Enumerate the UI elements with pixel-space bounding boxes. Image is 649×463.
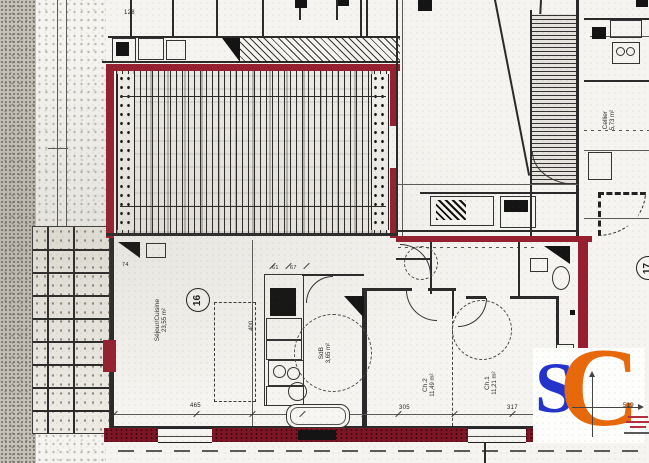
dim-text: 305	[399, 405, 410, 411]
room-label-ch2: Ch.2 11,49 m²	[422, 350, 438, 420]
adjacent-lot-badge: 17	[636, 256, 649, 280]
fixture-block	[338, 0, 349, 6]
dim-vertical-400: 400	[249, 306, 257, 346]
boundary-red-marker	[103, 340, 116, 372]
dim-tick	[303, 263, 309, 269]
room-label-ch1: Ch.1 11,21 m²	[484, 348, 500, 418]
door-sill	[298, 430, 336, 440]
oven-block	[270, 288, 296, 316]
annotation-line	[624, 432, 649, 434]
red-annotation-mark	[626, 421, 649, 423]
washbasin	[288, 382, 307, 401]
sc-logo: S C	[533, 348, 645, 443]
fixture	[588, 152, 612, 180]
step-line	[33, 295, 109, 297]
wc-bowl	[552, 266, 570, 290]
turning-circle-dashed	[452, 300, 512, 360]
boundary-red-top	[106, 64, 400, 71]
site-tick	[48, 148, 68, 149]
dim-text: 128	[124, 10, 135, 16]
window	[468, 428, 526, 443]
step-line	[33, 387, 109, 389]
wall-line	[262, 0, 264, 38]
step-line	[33, 364, 109, 366]
wall-line	[360, 0, 362, 36]
hatched-band	[238, 38, 400, 62]
step-line	[33, 410, 109, 412]
crosshair-arrow-right-icon	[638, 404, 644, 410]
interior-wall	[518, 242, 520, 296]
room-name: Séjour/Cuisine	[154, 270, 162, 370]
boundary-red-left	[106, 64, 114, 238]
wall-line	[576, 0, 579, 236]
kitchen-counter	[138, 38, 164, 60]
fixture	[612, 42, 640, 64]
step-line	[33, 318, 109, 320]
site-boundary-line	[66, 0, 67, 234]
room-name: Cellier	[602, 85, 610, 155]
room-area: 3,65 m²	[326, 323, 334, 383]
stove-block	[116, 42, 129, 56]
step-line	[33, 249, 109, 251]
dimension-line	[120, 206, 386, 207]
fixture	[146, 243, 166, 258]
sink-bowl	[273, 365, 286, 378]
room-area: 11,49 m²	[430, 350, 438, 420]
dim-text: 61	[272, 266, 279, 272]
dimension-line	[120, 96, 386, 97]
wall-line	[420, 192, 578, 194]
burner-circle	[626, 47, 635, 56]
room-name: Ch.2	[422, 350, 430, 420]
room-label-cellier: Cellier 5,73 m²	[602, 85, 618, 155]
boundary-red-top	[396, 236, 592, 242]
wall-line	[216, 0, 218, 36]
door-arc	[406, 290, 437, 321]
wall-line	[302, 274, 364, 276]
dim-text: 67	[290, 266, 297, 272]
wall-line	[584, 218, 649, 219]
step-line	[33, 272, 109, 274]
dim-text: 74	[122, 263, 129, 269]
wall-line	[130, 0, 132, 36]
red-annotation-mark	[628, 416, 648, 418]
wall-line	[398, 184, 578, 185]
wall-line	[510, 296, 558, 299]
wall-line	[396, 0, 398, 238]
lot-number: 16	[193, 294, 204, 305]
dim-text: 519	[623, 403, 634, 409]
fixture-block	[504, 200, 528, 212]
fixture	[610, 20, 642, 38]
roof-slope-line	[494, 0, 530, 176]
wall-line	[402, 0, 403, 238]
wall-line	[584, 80, 649, 82]
exterior-wall	[110, 238, 114, 428]
fixture-block	[418, 0, 432, 11]
room-area: 11,21 m²	[492, 348, 500, 418]
kitchen-counter	[166, 40, 186, 60]
step-line	[33, 341, 109, 343]
hatched-fixture	[436, 200, 466, 220]
dim-text: 317	[507, 405, 518, 411]
room-area: 23,55 m²	[162, 270, 170, 370]
room-name: Ch.1	[484, 348, 492, 418]
wall-line	[398, 230, 578, 232]
step-rail	[73, 227, 75, 433]
door-stop	[570, 310, 575, 315]
red-annotation-mark	[630, 426, 646, 428]
logo-letter-c: C	[559, 332, 640, 444]
wall-line	[172, 0, 174, 36]
scanned-floor-plan: Séjour/Cuisine 23,55 m² 16 400 SdB 3,65 …	[0, 0, 649, 463]
adjacent-lot-number: 17	[643, 262, 649, 273]
wall-line	[106, 233, 398, 236]
door-arc-dashed	[598, 192, 646, 236]
room-name: SdB	[318, 323, 326, 383]
site-boundary-line	[57, 0, 58, 234]
ground-texture-strip	[0, 0, 36, 463]
bathtub	[286, 404, 350, 428]
corner-fixture	[118, 242, 140, 258]
lot-number-badge: 16	[186, 288, 210, 312]
exterior-steps	[32, 226, 110, 434]
interior-wall	[452, 288, 454, 316]
fixture	[530, 258, 548, 272]
dimension-line	[114, 414, 594, 415]
dim-text: 465	[190, 403, 201, 409]
wall-line	[366, 0, 368, 36]
fixture-block	[592, 27, 606, 39]
dim-text: 400	[249, 306, 257, 346]
burner-circle	[616, 47, 625, 56]
fixture-block	[636, 0, 648, 7]
fixture-block	[295, 0, 307, 8]
crosshair-arrow-up-icon	[589, 371, 595, 377]
room-label-sejour: Séjour/Cuisine 23,55 m²	[154, 270, 170, 370]
property-boundary-dashed	[118, 450, 649, 452]
door-swing-dashed	[404, 246, 438, 280]
door-arc	[306, 276, 333, 303]
kitchen-counter	[112, 38, 136, 62]
step-rail	[47, 227, 49, 433]
window	[158, 428, 212, 443]
room-label-sdb: SdB 3,65 m²	[318, 323, 334, 383]
room-area: 5,73 m²	[610, 85, 618, 155]
shower-corner	[344, 296, 364, 318]
